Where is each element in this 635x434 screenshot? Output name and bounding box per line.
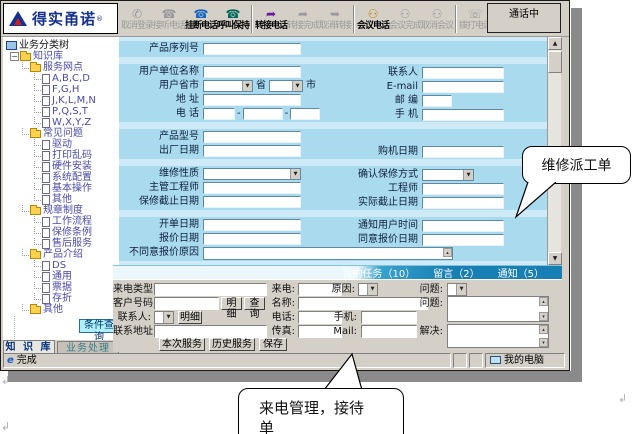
call-status-text: 通话中 — [509, 9, 539, 20]
toolbar-button-label: 取消会议 — [421, 21, 453, 31]
name-input[interactable] — [298, 297, 428, 310]
callout-tail — [506, 182, 566, 220]
form-right-group: 联系人 — [304, 66, 504, 80]
bottom-tabstrip: 我的任务（10）留言（2）通知（5） — [113, 265, 562, 279]
form-right-group: 同意报价日期 — [304, 233, 504, 247]
tree-item[interactable]: 基本操作 — [3, 183, 119, 194]
form-right-group: 通知用户时间 — [304, 219, 504, 233]
save-button[interactable]: 保存 — [259, 338, 287, 351]
transfer-call-icon: ➦ — [266, 8, 276, 21]
tree-connector — [22, 249, 29, 256]
form-input[interactable] — [203, 131, 301, 143]
status-zone-text: 我的电脑 — [504, 355, 544, 366]
doc-icon — [42, 140, 50, 150]
dropdown-icon[interactable]: ▼ — [456, 284, 466, 295]
toolbar-button-label: 取消转接 — [319, 21, 351, 31]
fax-label: 传真: — [265, 326, 295, 338]
folder-open-icon — [20, 53, 31, 61]
tree-item-label: 保修条例 — [52, 227, 92, 238]
tree-item[interactable]: 硬件安装 — [3, 161, 119, 172]
ie-icon: e — [7, 354, 14, 367]
form-input[interactable] — [203, 94, 301, 106]
form-label: E-mail — [304, 80, 422, 94]
toolbar-button-label: 转接完成 — [287, 21, 319, 31]
tree-item-label: J,K,L,M,N — [52, 95, 96, 106]
doc-icon — [42, 228, 50, 238]
section-separator — [119, 159, 547, 166]
status-zone: 我的电脑 — [485, 353, 565, 368]
form-label: 同意报价日期 — [304, 233, 422, 247]
phone-part-input[interactable] — [203, 108, 235, 120]
tree-connector — [34, 73, 41, 80]
form-right-group: 工程师 — [304, 182, 504, 196]
dropdown-icon[interactable]: ▼ — [292, 81, 302, 91]
tree-connector — [22, 205, 29, 212]
solve-label: 解决: — [413, 326, 443, 338]
callout-call-line1: 来电管理，接待 — [259, 398, 403, 418]
section-separator — [119, 122, 547, 129]
phone-label: 电话: — [265, 312, 295, 324]
page-anchor-mark: ↲ — [618, 392, 627, 405]
registered-mark: ® — [96, 15, 103, 23]
app-window: 得实甬诺 ® ✆取消登录☎接听电话☎挂断电话☎呼叫保持➦转接电话➦转接完成➥取消… — [0, 0, 570, 371]
hangup-call-button[interactable]: ☎挂断电话 — [185, 2, 217, 36]
tree-item-label: 系统配置 — [52, 172, 92, 183]
doc-icon — [42, 107, 50, 117]
form-input[interactable] — [422, 81, 504, 93]
doc-icon — [42, 283, 50, 293]
tree-connector — [34, 194, 41, 201]
dropdown-icon[interactable]: ▼ — [290, 169, 300, 179]
tree-item[interactable]: 存折 — [3, 293, 119, 304]
doc-icon — [42, 217, 50, 227]
tree-item[interactable]: F,G,H — [3, 84, 119, 95]
hold-call-icon: ☎ — [226, 8, 241, 21]
tree-item-label: 票据 — [52, 282, 72, 293]
name-label: 名称: — [265, 298, 295, 310]
form-section: 开单日期通知用户时间报价日期同意报价日期不同意报价原因▴ — [119, 217, 547, 261]
form-input[interactable] — [422, 95, 452, 107]
mobile-label: 手机: — [329, 312, 357, 324]
scrollbar-thumb[interactable] — [548, 51, 562, 73]
tree-item-label: 规章制度 — [43, 205, 83, 216]
form-label: 产品型号 — [119, 130, 203, 144]
tree-connector — [34, 227, 41, 234]
toolbar-button-label: 接听电话 — [153, 21, 185, 31]
tree-connector — [34, 106, 41, 113]
window-shadow — [571, 8, 582, 380]
tree-connector — [22, 62, 29, 69]
form-section: 产品序列号 — [119, 41, 547, 57]
form-label: 主管工程师 — [119, 181, 203, 195]
doc-icon — [42, 294, 50, 304]
form-label: 维修性质 — [119, 167, 203, 181]
tree-item-label: A,B,C,D — [52, 73, 90, 84]
form-section: 维修性质▼确认保修方式▼主管工程师工程师保修截止日期实际截止日期 — [119, 166, 547, 210]
tree-item[interactable]: A,B,C,D — [3, 73, 119, 84]
form-label: 实际截止日期 — [304, 196, 422, 210]
tree-root[interactable]: 业务分类树 — [3, 40, 119, 51]
form-right-group: 购机日期 — [304, 145, 504, 159]
cancel-conference-icon: ⚇ — [432, 8, 443, 21]
form-input[interactable] — [203, 196, 301, 208]
form-row: 主管工程师工程师 — [119, 181, 547, 195]
tree-item[interactable]: −知识库 — [3, 51, 119, 62]
tree-root-icon — [6, 41, 17, 50]
tree-item-label: 通用 — [52, 271, 72, 282]
issue-label-1: 问题: — [413, 284, 443, 296]
doc-icon — [42, 239, 50, 249]
form-label: 工程师 — [304, 182, 422, 196]
form-row: 电 话--手 机 — [119, 107, 547, 121]
doc-icon — [42, 96, 50, 106]
conference-complete-icon: ⚇ — [400, 8, 411, 21]
section-separator — [119, 210, 547, 217]
cancel-login-button: ✆取消登录 — [121, 2, 153, 36]
tree-item-label: 存折 — [52, 293, 72, 304]
doc-icon — [42, 151, 50, 161]
folder-open-icon — [30, 207, 41, 215]
toolbar-separator — [455, 5, 457, 33]
main-form: 产品序列号用户单位名称联系人用户省市▼省▼市E-mail地 址邮 编电 话--手… — [119, 37, 547, 265]
brand-logo: 得实甬诺 ® — [3, 3, 118, 34]
tree-connector — [34, 282, 41, 289]
this-service-button[interactable]: 本次服务 — [159, 338, 205, 351]
form-label: 邮 编 — [304, 94, 422, 108]
doc-icon — [42, 173, 50, 183]
tree-item[interactable]: 驱动 — [3, 139, 119, 150]
form-label: 出厂日期 — [119, 144, 203, 158]
dial-call-icon: ☏ — [467, 8, 482, 21]
doc-icon — [42, 74, 50, 84]
issue-textarea[interactable]: ▴ ▾ — [447, 296, 549, 322]
doc-icon — [42, 162, 50, 172]
form-select[interactable]: ▼ — [203, 168, 301, 180]
form-label: 电 话 — [119, 107, 203, 121]
dropdown-icon[interactable]: ▼ — [242, 81, 252, 91]
phone-separator: - — [237, 107, 241, 121]
mobile-input[interactable] — [361, 311, 417, 324]
tree-connector — [34, 139, 41, 146]
answer-call-icon: ☎ — [162, 8, 177, 21]
dropdown-icon[interactable]: ▼ — [367, 284, 377, 295]
doc-icon — [42, 261, 50, 271]
form-right-group: 确认保修方式▼ — [304, 168, 474, 182]
form-label: 用户省市 — [119, 79, 203, 93]
form-label: 手 机 — [304, 108, 422, 122]
brand-logo-icon — [9, 11, 27, 26]
tree-connector — [34, 161, 41, 168]
tree-connector — [34, 84, 41, 91]
form-input[interactable] — [422, 183, 504, 195]
folder-open-icon — [30, 130, 41, 138]
tree-connector — [34, 117, 41, 124]
form-section: 产品型号出厂日期购机日期 — [119, 129, 547, 159]
scroll-up-icon[interactable]: ▴ — [539, 297, 548, 306]
tree-connector — [34, 150, 41, 157]
customer-number-label: 客户号码: — [113, 298, 151, 310]
hangup-call-icon: ☎ — [194, 8, 209, 21]
form-row: 不同意报价原因▴ — [119, 246, 547, 260]
form-input[interactable] — [422, 109, 504, 121]
toolbar-button-label: 取消登录 — [121, 21, 153, 31]
folder-closed-icon — [30, 306, 41, 314]
call-panel: 来电类型: 来电: 原因: ▼ 问题: ▼ 客户号码: 明细 查询 名称: 问题… — [113, 279, 562, 352]
customer-number-input[interactable] — [154, 297, 219, 310]
callout-tail — [316, 352, 370, 390]
tree-item[interactable]: 其他 — [3, 194, 119, 205]
tree-item-label: 其他 — [43, 304, 63, 315]
form-label: 地 址 — [119, 93, 203, 107]
doc-icon — [42, 272, 50, 282]
callout-call-line2: 单 — [259, 418, 403, 434]
tree-item-label: 售后服务 — [52, 238, 92, 249]
phone-part-input[interactable] — [243, 108, 283, 120]
call-type-input[interactable] — [154, 283, 267, 296]
bottom-tab-2[interactable]: 通知（5） — [498, 265, 544, 280]
form-row: 产品序列号 — [119, 42, 547, 56]
history-service-button[interactable]: 历史服务 — [209, 338, 255, 351]
tree-item-label: 其他 — [52, 194, 72, 205]
phone-separator: - — [285, 107, 289, 121]
form-row: 维修性质▼确认保修方式▼ — [119, 167, 547, 181]
doc-icon — [42, 195, 50, 205]
form-right-group: 手 机 — [304, 108, 504, 122]
hold-call-button[interactable]: ☎呼叫保持 — [217, 2, 249, 36]
form-input[interactable] — [203, 233, 301, 245]
toolbar-button-label: 呼叫保持 — [217, 21, 249, 31]
cancel-transfer-button: ➥取消转接 — [319, 2, 351, 36]
tree-item[interactable]: W,X,Y,Z — [3, 117, 119, 128]
answer-call-button: ☎接听电话 — [153, 2, 185, 36]
form-label: 开单日期 — [119, 218, 203, 232]
query-button[interactable]: 查询 — [244, 297, 265, 310]
transfer-call-button[interactable]: ➦转接电话 — [255, 2, 287, 36]
province-select[interactable]: ▼ — [203, 80, 253, 92]
tree-item[interactable]: 其他 — [3, 304, 119, 315]
tree-connector — [34, 95, 41, 102]
status-done: e完成 — [3, 353, 451, 368]
form-textarea[interactable]: ▴ — [203, 247, 453, 260]
tree-item[interactable]: 工作流程 — [3, 216, 119, 227]
scroll-up-icon[interactable]: ▴ — [539, 325, 548, 334]
form-input[interactable] — [203, 182, 301, 194]
tree-item-label: W,X,Y,Z — [52, 117, 91, 128]
toolbar-button-label: 转接电话 — [255, 21, 287, 31]
form-label: 不同意报价原因 — [119, 246, 203, 260]
dropdown-icon[interactable]: ▼ — [163, 312, 173, 323]
form-input[interactable] — [203, 219, 301, 231]
contact-label: 联系人: — [113, 312, 151, 324]
tree-item-label: 驱动 — [52, 139, 72, 150]
province-suffix-label: 省 — [256, 79, 266, 93]
form-input[interactable] — [203, 145, 301, 157]
form-label: 联系人 — [304, 66, 422, 80]
call-type-label: 来电类型: — [113, 284, 151, 296]
tree-item-label: DS — [52, 260, 66, 271]
issue-select[interactable]: ▼ — [447, 283, 467, 296]
status-done-text: 完成 — [17, 355, 37, 366]
tree-item[interactable]: DS — [3, 260, 119, 271]
toolbar: 得实甬诺 ® ✆取消登录☎接听电话☎挂断电话☎呼叫保持➦转接电话➦转接完成➥取消… — [1, 1, 569, 37]
tree-item-label: 知识库 — [33, 51, 63, 62]
cancel-conference-button: ⚇取消会议 — [421, 2, 453, 36]
tree-item[interactable]: J,K,L,M,N — [3, 95, 119, 106]
sidebar: 业务分类树 −知识库服务网点A,B,C,DF,G,HJ,K,L,M,NP,Q,S… — [3, 37, 119, 340]
tree-item[interactable]: 系统配置 — [3, 172, 119, 183]
doc-icon — [42, 184, 50, 194]
mail-label: Mail: — [329, 326, 357, 338]
tree-item[interactable]: 产品介绍 — [3, 249, 119, 260]
status-panel — [469, 353, 483, 368]
tree-item[interactable]: 常见问题 — [3, 128, 119, 139]
callout-repair-text: 维修派工单 — [542, 155, 612, 175]
tree-connector — [34, 260, 41, 267]
tree-root-label: 业务分类树 — [19, 40, 69, 51]
form-row: 开单日期通知用户时间 — [119, 218, 547, 232]
form-input[interactable] — [422, 220, 504, 232]
form-label: 保修截止日期 — [119, 195, 203, 209]
tree-connector — [34, 238, 41, 245]
tree-connector — [22, 304, 29, 311]
form-row: 用户省市▼省▼市E-mail — [119, 79, 547, 93]
tree-item[interactable]: 规章制度 — [3, 205, 119, 216]
form-label: 通知用户时间 — [304, 219, 422, 233]
tree-connector — [34, 293, 41, 300]
tree-item[interactable]: 通用 — [3, 271, 119, 282]
tree-item-label: 服务网点 — [43, 62, 83, 73]
cancel-transfer-icon: ➥ — [330, 8, 340, 21]
form-row: 产品型号 — [119, 130, 547, 144]
form-row: 保修截止日期实际截止日期 — [119, 195, 547, 209]
form-row: 报价日期同意报价日期 — [119, 232, 547, 246]
scroll-up-icon[interactable]: ▲ — [548, 37, 562, 50]
city-select[interactable]: ▼ — [269, 80, 303, 92]
form-right-group: E-mail — [304, 80, 504, 94]
toolbar-button-label: 会议电话 — [357, 21, 389, 31]
form-input[interactable] — [422, 197, 504, 209]
tree-item[interactable]: 票据 — [3, 282, 119, 293]
tree-item-label: 产品介绍 — [43, 249, 83, 260]
folder-open-icon — [30, 251, 41, 259]
toolbar-separator — [251, 5, 253, 33]
reason-select[interactable]: ▼ — [358, 283, 378, 296]
status-bar: e完成 我的电脑 — [3, 353, 567, 368]
tree-item-label: F,G,H — [52, 84, 79, 95]
transfer-complete-button: ➦转接完成 — [287, 2, 319, 36]
transfer-complete-icon: ➦ — [298, 8, 308, 21]
scroll-up-icon[interactable]: ▴ — [443, 248, 452, 257]
form-row: 地 址邮 编 — [119, 93, 547, 107]
contact-address-input[interactable] — [154, 325, 267, 338]
bottom-tab-1[interactable]: 留言（2） — [433, 265, 479, 280]
brand-name: 得实甬诺 — [32, 8, 96, 29]
solve-textarea[interactable]: ▴ ▾ — [447, 324, 549, 348]
toolbar-separator — [353, 5, 355, 33]
toolbar-button-label: 会议完成 — [389, 21, 421, 31]
page-anchor-mark: ↲ — [1, 420, 10, 433]
tree-item[interactable]: 保修条例 — [3, 227, 119, 238]
contact-address-label: 联系地址: — [113, 326, 151, 338]
toolbar-button-label: 挂断电话 — [185, 21, 217, 31]
tree-item-label: P,Q,S,T — [52, 106, 88, 117]
doc-icon — [42, 85, 50, 95]
contact-select[interactable]: ▼ — [154, 311, 174, 324]
form-input[interactable] — [422, 67, 504, 79]
reason-label: 原因: — [327, 284, 355, 296]
form-right-group: 实际截止日期 — [304, 196, 504, 210]
form-label: 产品序列号 — [119, 42, 203, 56]
tree-connector — [34, 183, 41, 190]
scroll-down-icon[interactable]: ▼ — [548, 252, 562, 265]
callout-call-management: 来电管理，接待 单 — [238, 388, 404, 434]
tree-connector — [22, 128, 29, 135]
detail-button-2[interactable]: 明细 — [178, 311, 202, 324]
section-separator — [119, 57, 547, 64]
tree-item[interactable]: P,Q,S,T — [3, 106, 119, 117]
form-input[interactable] — [203, 43, 301, 55]
form-section: 用户单位名称联系人用户省市▼省▼市E-mail地 址邮 编电 话--手 机 — [119, 64, 547, 122]
form-label: 购机日期 — [304, 145, 422, 159]
tree-item[interactable]: 打印乱码 — [3, 150, 119, 161]
incoming-label: 来电: — [265, 284, 295, 296]
tree: 业务分类树 −知识库服务网点A,B,C,DF,G,HJ,K,L,M,NP,Q,S… — [3, 40, 119, 315]
scroll-down-icon[interactable]: ▾ — [539, 338, 548, 347]
tree-item[interactable]: 售后服务 — [3, 238, 119, 249]
status-panel — [453, 353, 467, 368]
tree-item-label: 基本操作 — [52, 183, 92, 194]
tree-expander-icon[interactable]: − — [10, 52, 19, 61]
mail-input[interactable] — [361, 325, 417, 338]
form-row: 用户单位名称联系人 — [119, 65, 547, 79]
bottom-tab-0[interactable]: 我的任务（10） — [343, 265, 416, 280]
tree-item-label: 常见问题 — [43, 128, 83, 139]
form-input[interactable] — [422, 146, 504, 158]
tree-connector — [34, 172, 41, 179]
form-right-group: 邮 编 — [304, 94, 452, 108]
issue-label-2: 问题: — [413, 298, 443, 310]
page-anchor-mark: ↲ — [1, 374, 10, 387]
dropdown-icon[interactable]: ▼ — [463, 170, 473, 180]
form-label: 用户单位名称 — [119, 65, 203, 79]
tree-item-label: 硬件安装 — [52, 161, 92, 172]
folder-open-icon — [30, 64, 41, 72]
form-input[interactable] — [422, 234, 504, 246]
window-shadow — [8, 371, 582, 382]
tree-item-label: 工作流程 — [52, 216, 92, 227]
page: 得实甬诺 ® ✆取消登录☎接听电话☎挂断电话☎呼叫保持➦转接电话➦转接完成➥取消… — [0, 0, 635, 434]
conference-call-button[interactable]: ⚇会议电话 — [357, 2, 389, 36]
form-select[interactable]: ▼ — [422, 169, 474, 181]
scroll-down-icon[interactable]: ▾ — [539, 312, 548, 321]
form-input[interactable] — [203, 66, 301, 78]
tree-connector — [34, 216, 41, 223]
doc-icon — [42, 118, 50, 128]
call-status-box: 通话中 — [487, 3, 561, 33]
callout-repair-order: 维修派工单 — [522, 146, 631, 184]
form-row: 出厂日期购机日期 — [119, 144, 547, 158]
toolbar-buttons: ✆取消登录☎接听电话☎挂断电话☎呼叫保持➦转接电话➦转接完成➥取消转接⚇会议电话… — [121, 2, 491, 36]
conference-complete-button: ⚇会议完成 — [389, 2, 421, 36]
form-label: 确认保修方式 — [304, 168, 422, 182]
detail-button-1[interactable]: 明细 — [221, 297, 242, 310]
tree-item-label: 打印乱码 — [52, 150, 92, 161]
tree-connector — [34, 271, 41, 278]
conference-call-icon: ⚇ — [368, 8, 379, 21]
tree-item[interactable]: 服务网点 — [3, 62, 119, 73]
my-computer-icon — [490, 356, 501, 364]
cancel-login-icon: ✆ — [132, 8, 142, 21]
